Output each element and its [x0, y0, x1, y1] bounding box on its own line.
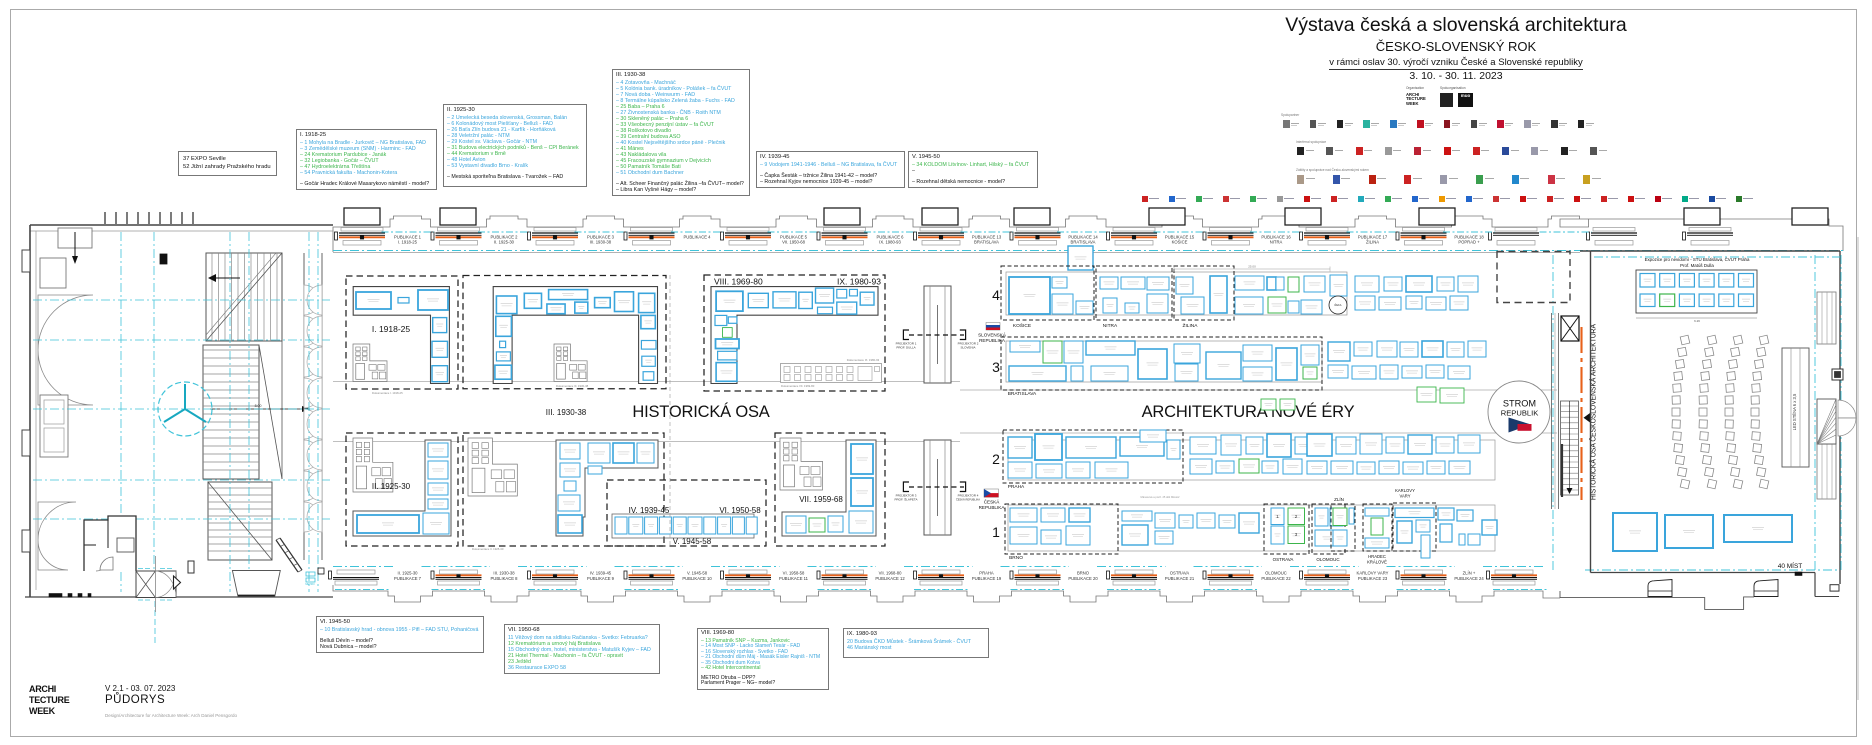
svg-text:8.00: 8.00 [255, 404, 262, 408]
svg-text:IX. 1980-93: IX. 1980-93 [879, 240, 901, 245]
svg-text:PUBLIKACE 7: PUBLIKACE 7 [394, 576, 422, 581]
svg-text:PUBLIKACE 12: PUBLIKACE 12 [875, 576, 905, 581]
svg-text:Dokumentace III. 1930-38: Dokumentace III. 1930-38 [556, 384, 589, 388]
svg-text:PUBLIKACE 23: PUBLIKACE 23 [1358, 576, 1388, 581]
svg-text:PUBLIKACE 8: PUBLIKACE 8 [491, 576, 519, 581]
svg-text:ZLÍN +: ZLÍN + [1463, 571, 1476, 576]
svg-text:LED STĚNA 6 x 3,5: LED STĚNA 6 x 3,5 [1792, 393, 1797, 430]
svg-text:REPUBLIKA: REPUBLIKA [979, 338, 1006, 343]
svg-text:V. 1945-58: V. 1945-58 [687, 571, 708, 576]
svg-text:PUBLIKACE 9: PUBLIKACE 9 [587, 576, 615, 581]
svg-text:KOŠICE: KOŠICE [1172, 240, 1188, 245]
svg-text:Dokumentace I. 1918-25: Dokumentace I. 1918-25 [372, 391, 403, 395]
svg-text:VARY: VARY [1399, 494, 1410, 499]
svg-text:I. 1918-25: I. 1918-25 [372, 324, 411, 334]
svg-text:REPUBLIKA: REPUBLIKA [979, 505, 1006, 510]
svg-text:III. 1930-38: III. 1930-38 [493, 571, 515, 576]
svg-text:Dokumentace II. 1925-30: Dokumentace II. 1925-30 [472, 547, 504, 551]
svg-text:BRATISLAVA: BRATISLAVA [1071, 240, 1096, 245]
svg-text:BRATISLAVA: BRATISLAVA [1008, 391, 1037, 397]
svg-text:II. 1925-30: II. 1925-30 [397, 571, 418, 576]
svg-text:IX. 1980-93: IX. 1980-93 [837, 277, 881, 287]
svg-text:HISTORICKÁ OSA: HISTORICKÁ OSA [632, 402, 769, 421]
svg-text:II. 1925-30: II. 1925-30 [372, 482, 411, 491]
svg-text:STROM: STROM [1503, 399, 1536, 409]
svg-text:III. 1930-38: III. 1930-38 [590, 240, 612, 245]
svg-text:Expozice pro nevidomí - STU Br: Expozice pro nevidomí - STU Bratislava, … [1645, 257, 1750, 262]
svg-text:OLOMOUC: OLOMOUC [1265, 571, 1287, 576]
svg-text:PUBLIKACE 19: PUBLIKACE 19 [972, 576, 1002, 581]
svg-text:Prof. Matúš Dulla: Prof. Matúš Dulla [1680, 263, 1714, 268]
svg-text:KARLOVY: KARLOVY [1395, 488, 1415, 493]
svg-text:PRAHA: PRAHA [1008, 484, 1025, 490]
svg-text:VIII. 1969-80: VIII. 1969-80 [714, 277, 763, 287]
svg-text:PROJEKTOR 4: PROJEKTOR 4 [958, 494, 979, 498]
svg-text:PRAHA: PRAHA [979, 571, 994, 576]
svg-text:2: 2 [992, 451, 1000, 467]
svg-text:OSTRAVA: OSTRAVA [1170, 571, 1190, 576]
svg-text:IV. 1939-45: IV. 1939-45 [590, 571, 612, 576]
svg-text:BRNO: BRNO [1077, 571, 1090, 576]
svg-text:VII. 1950-68: VII. 1950-68 [782, 240, 805, 245]
svg-text:6.26: 6.26 [1694, 319, 1700, 323]
svg-text:ZLÍN: ZLÍN [1334, 496, 1344, 502]
svg-text:HRADEC: HRADEC [1368, 554, 1386, 559]
svg-text:VII. 1968-80: VII. 1968-80 [879, 571, 902, 576]
svg-text:SLOVENIA: SLOVENIA [960, 346, 975, 350]
svg-text:PUBLIKACE 20: PUBLIKACE 20 [1068, 576, 1098, 581]
svg-text:BRATISLAVA: BRATISLAVA [974, 240, 999, 245]
svg-text:3: 3 [992, 359, 1000, 375]
svg-text:ŽILINA: ŽILINA [1183, 321, 1199, 329]
svg-text:REPUBLIK: REPUBLIK [1501, 409, 1539, 418]
svg-text:PUBLIKACE 21: PUBLIKACE 21 [1165, 576, 1195, 581]
svg-text:PUBLIKACE 4: PUBLIKACE 4 [684, 235, 712, 240]
svg-text:III. 1930-38: III. 1930-38 [546, 408, 587, 417]
svg-text:PUBLIKACE 10: PUBLIKACE 10 [682, 576, 712, 581]
svg-text:VII. 1959-68: VII. 1959-68 [799, 495, 843, 504]
svg-text:KARLOVY VARY: KARLOVY VARY [1357, 571, 1389, 576]
svg-text:PROF. ŠLAPETA: PROF. ŠLAPETA [895, 497, 918, 502]
svg-text:BRNO: BRNO [1009, 555, 1023, 561]
svg-text:PUBLIKACE 11: PUBLIKACE 11 [779, 576, 809, 581]
svg-text:METRO: METRO [305, 582, 314, 586]
svg-text:4: 4 [992, 287, 1000, 303]
svg-text:25.00: 25.00 [1248, 265, 1256, 269]
svg-text:POPRAD +: POPRAD + [1458, 240, 1480, 245]
svg-text:1: 1 [992, 524, 1000, 540]
svg-text:PUBLIKACE 24: PUBLIKACE 24 [1454, 576, 1484, 581]
svg-text:OSTRAVA: OSTRAVA [1273, 557, 1294, 562]
svg-text:Mánesová a pozň. 25 děti Město: Mánesová a pozň. 25 děti Město2 [1141, 495, 1180, 499]
svg-text:VI. 1958-58: VI. 1958-58 [783, 571, 805, 576]
svg-text:PROF. DULLA: PROF. DULLA [896, 346, 915, 350]
svg-text:OLOMOUC: OLOMOUC [1316, 557, 1340, 562]
svg-text:KOŠICE: KOŠICE [1013, 322, 1031, 329]
svg-text:ARCHITEKTURA NOVÉ ÉRY: ARCHITEKTURA NOVÉ ÉRY [1142, 402, 1355, 421]
svg-text:ŽILINA: ŽILINA [1366, 240, 1379, 245]
svg-text:Dokumentace VII. 1969-80: Dokumentace VII. 1969-80 [781, 384, 815, 388]
svg-text:KRÁLOVÉ: KRÁLOVÉ [1367, 560, 1387, 565]
svg-text:II. 1925-30: II. 1925-30 [494, 240, 515, 245]
svg-text:PUBLIKACE 22: PUBLIKACE 22 [1261, 576, 1291, 581]
svg-text:ČESKÁ: ČESKÁ [984, 499, 1001, 505]
svg-text:I. 1918-25: I. 1918-25 [398, 240, 418, 245]
svg-text:NITRA: NITRA [1270, 240, 1283, 245]
svg-text:Dokumentace IX. 1980-93: Dokumentace IX. 1980-93 [847, 358, 880, 362]
svg-text:40 MÍST: 40 MÍST [1778, 561, 1803, 570]
svg-text:NITRA: NITRA [1103, 323, 1118, 329]
